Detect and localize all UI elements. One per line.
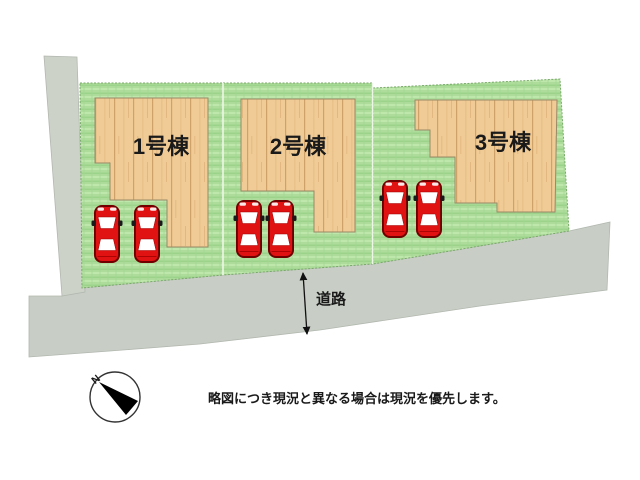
disclaimer-note: 略図につき現況と異なる場合は現況を優先します。 — [208, 391, 506, 406]
site-plan-drawing: 1号棟 2号棟 3号棟 道路 N 略図につき現況と異なる場合は現況を優先します。 — [0, 0, 640, 480]
car-icon — [414, 181, 445, 237]
car-icon — [132, 206, 163, 262]
building-3-label: 3号棟 — [475, 130, 532, 155]
side-road-strip — [44, 56, 85, 296]
car-icon — [266, 201, 297, 257]
car-icon — [380, 181, 411, 237]
building-2-label: 2号棟 — [270, 134, 327, 159]
car-icon — [92, 206, 123, 262]
site-plan: 1号棟 2号棟 3号棟 道路 N 略図につき現況と異なる場合は現況を優先します。 — [0, 0, 640, 480]
compass-icon: N — [89, 372, 140, 422]
building-1-label: 1号棟 — [133, 134, 190, 159]
car-icon — [234, 201, 265, 257]
road-label: 道路 — [316, 290, 347, 308]
